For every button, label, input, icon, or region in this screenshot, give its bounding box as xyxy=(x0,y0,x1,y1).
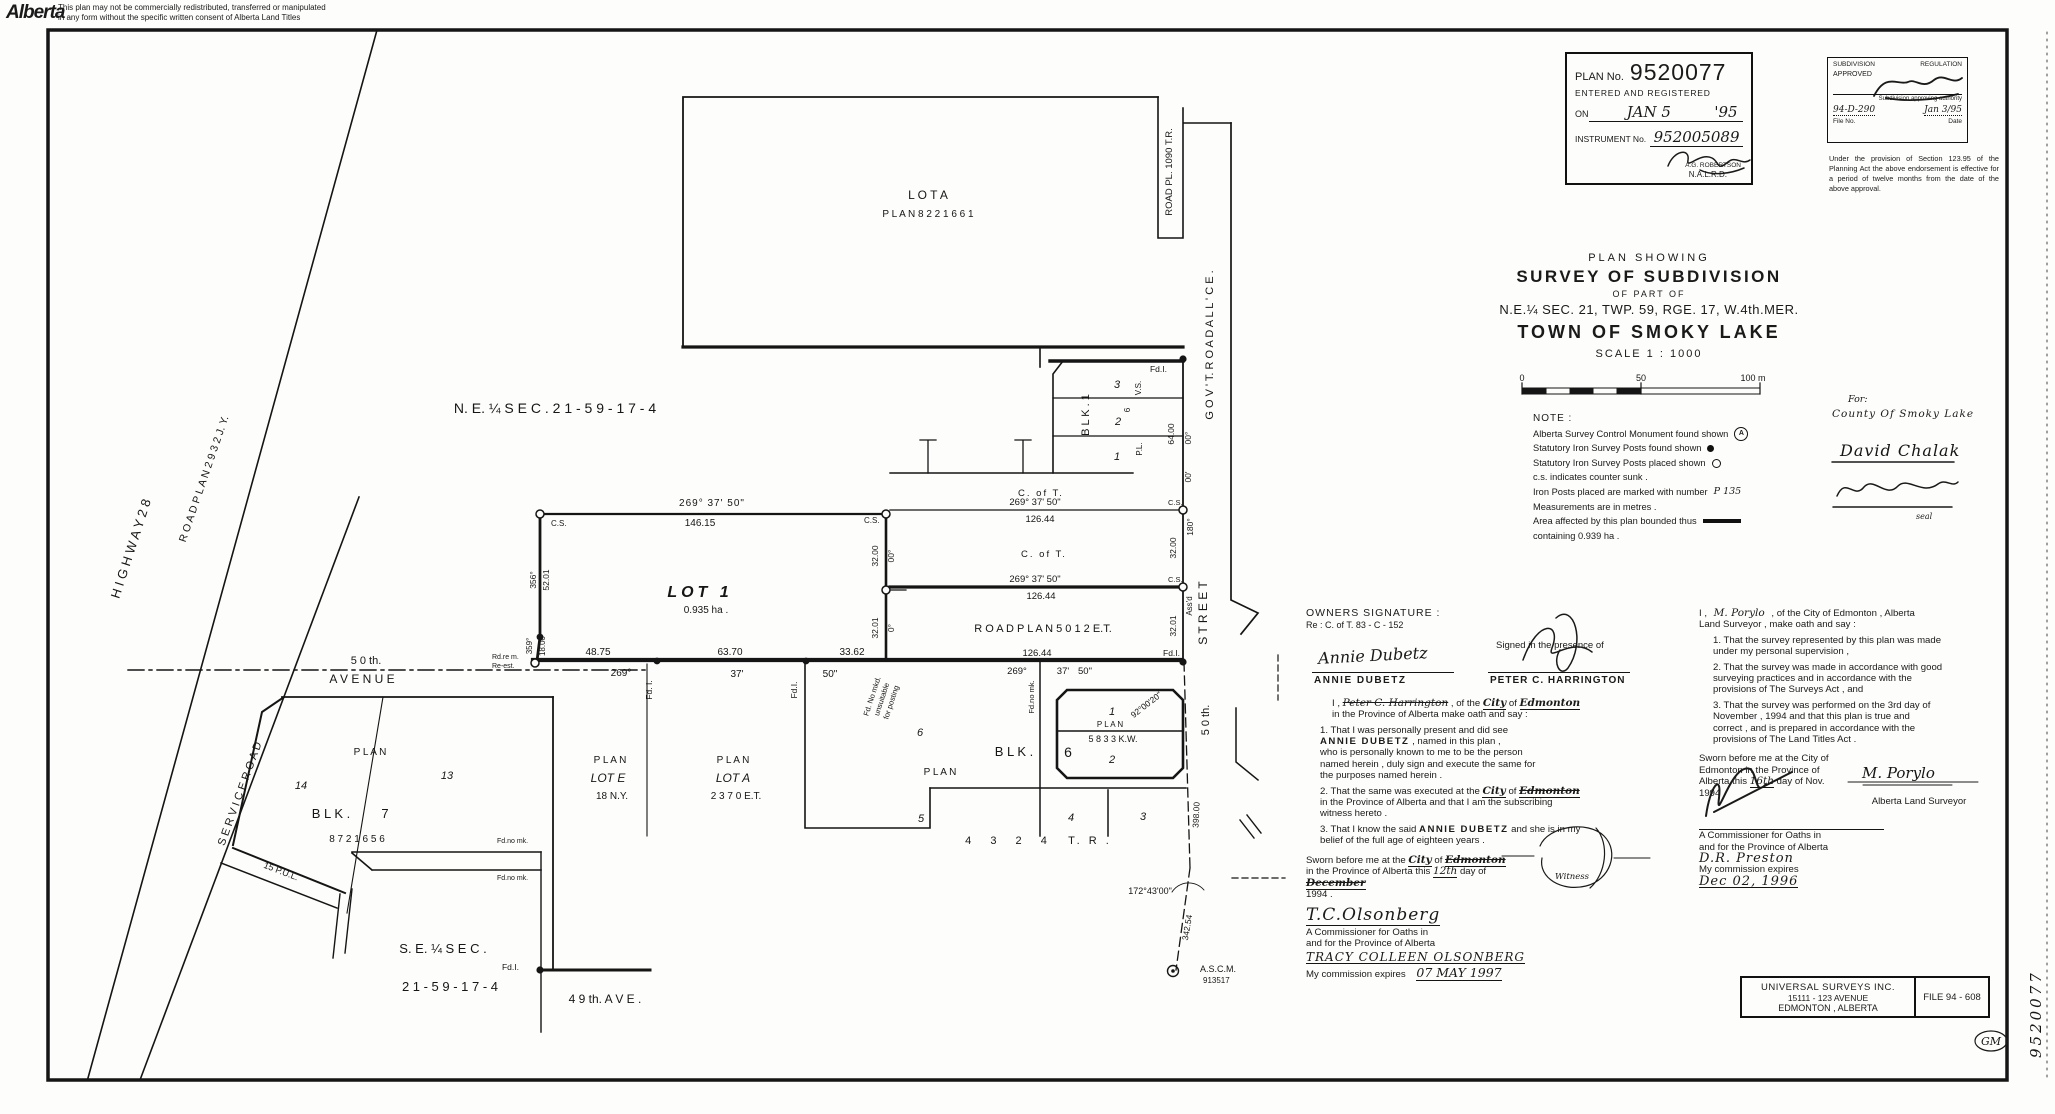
rd-note1: Rd.re m. xyxy=(492,654,519,661)
intro-place-hw: Edmonton xyxy=(1520,697,1581,710)
sworn-b: in the Province of xyxy=(1306,866,1380,877)
lot-number: 1 xyxy=(1109,706,1115,718)
on-label: ON xyxy=(1575,109,1589,119)
lot-number: 6 xyxy=(917,727,924,739)
bearing-rot: 00' xyxy=(1183,471,1193,482)
intro-mid: , of the xyxy=(1448,698,1483,709)
lote-plan: 18 N.Y. xyxy=(596,791,628,802)
dim-rot: 18.00 xyxy=(538,635,547,656)
note-line7: Area affected by this plan bounded thus xyxy=(1533,514,1697,529)
owners-heading: OWNERS SIGNATURE : xyxy=(1306,608,1698,619)
sworn-of: of xyxy=(1432,855,1443,866)
approval-file-value: 94-D-290 xyxy=(1833,105,1875,116)
cs-label: C.S. xyxy=(864,516,880,525)
bearing: 50" xyxy=(823,669,838,680)
parcel-tabs xyxy=(920,440,1031,473)
intro-line2: in the Province of Alberta make oath and… xyxy=(1332,709,1698,720)
surv-comm-date: Dec 02, 1996 xyxy=(1699,876,1798,888)
lot1-north-bearing: 269° 37' 50" xyxy=(679,498,745,509)
intro-city-hw: City xyxy=(1483,697,1506,710)
commissioner-area: T.C.Olsonberg A Commissioner for Oaths i… xyxy=(1306,910,1698,980)
approved-label: APPROVED xyxy=(1833,71,1872,78)
als-label: Alberta Land Surveyor xyxy=(1859,796,1979,807)
plan-label: P L A N xyxy=(354,747,387,758)
bearing: 269° 37' 50" xyxy=(1009,574,1060,585)
on-year: '95 xyxy=(1709,103,1743,122)
fd-label: Fd.I. xyxy=(789,681,799,698)
bearing-rot: 0° xyxy=(886,624,896,632)
alberta-logo: Alberta xyxy=(6,2,64,24)
plan-suffix-rot: P.L. xyxy=(1135,442,1144,455)
item1-text: 1. That I was personally present and did… xyxy=(1320,725,1508,736)
street50-label: 5 0 th. xyxy=(1200,705,1212,736)
owners-jurat: Sworn before me at the City of Edmonton … xyxy=(1306,855,1506,901)
scale-0: 0 xyxy=(1519,373,1524,383)
instrument-label: INSTRUMENT No. xyxy=(1575,134,1646,144)
surv-comm-name: D.R. Preston xyxy=(1699,853,1999,864)
service-road-line xyxy=(140,497,359,1080)
ne-quarter-label: N. E. ¼ S E C . 2 1 - 5 9 - 1 7 - 4 xyxy=(454,400,657,416)
note-line6: Measurements are in metres . xyxy=(1533,500,1801,515)
plan-label: P L A N xyxy=(594,755,627,766)
commissioner-signature: T.C.Olsonberg xyxy=(1306,905,1440,926)
bearing: 50" xyxy=(1078,666,1092,677)
note-line2: Statutory Iron Survey Posts found shown xyxy=(1533,441,1701,456)
plan-label: P L A N xyxy=(717,755,750,766)
plan4324: 4 3 2 4 xyxy=(965,835,1055,847)
blk6-plan: 5 8 3 3 K.W. xyxy=(1088,734,1137,744)
dim-rot: 342.54 xyxy=(1180,914,1194,942)
sworn-a: Sworn before me at the xyxy=(1306,855,1408,866)
angle-label: 172°43'00" xyxy=(1128,886,1172,896)
lotam-label: LOT A xyxy=(716,771,750,785)
note-line5: Iron Posts placed are marked with number xyxy=(1533,485,1708,500)
plan-label: P L A N xyxy=(1097,720,1123,729)
on-date: JAN 5 xyxy=(1589,103,1710,122)
ascm-label: A.S.C.M. xyxy=(1200,964,1236,974)
date-label: Date xyxy=(1948,118,1962,125)
dim: 33.62 xyxy=(839,647,864,658)
survey-plan-sheet: N. E. ¼ S E C . 2 1 - 5 9 - 1 7 - 4 S. E… xyxy=(0,0,2055,1114)
dim-rot: 52.01 xyxy=(541,569,551,591)
lot-number: 3 xyxy=(1114,379,1121,391)
fd-label: Fd.I. xyxy=(1150,364,1167,374)
fd-label: Fd.I. xyxy=(502,962,519,972)
bearing-rot: 00° xyxy=(1183,432,1193,445)
approval-caveat: Under the provision of Section 123.95 of… xyxy=(1829,154,1999,194)
surveyor-item2: 2. That the survey was made in accordanc… xyxy=(1713,662,1999,696)
blk6-lot-lines xyxy=(1040,661,1108,836)
bearing-rot: 00° xyxy=(886,550,896,563)
se-quarter-label2: 2 1 - 5 9 - 1 7 - 4 xyxy=(402,979,498,994)
intro-name-hw: Peter C. Harrington xyxy=(1343,697,1449,709)
highway-label: H I G H W A Y 2 8 xyxy=(108,497,154,600)
for-label: For: xyxy=(1848,394,1868,405)
approval-authority: Subdivision approving authority xyxy=(1833,94,1962,102)
seal-label: seal xyxy=(1916,512,1932,521)
witness-affidavit-intro: I , Peter C. Harrington , of the City of… xyxy=(1332,698,1698,721)
boundary-line-icon xyxy=(1703,519,1741,523)
rp1090-label: ROAD PL. 1090 T.R. xyxy=(1164,128,1175,215)
lota-west-north xyxy=(683,97,1158,347)
title-block: PLAN SHOWING SURVEY OF SUBDIVISION OF PA… xyxy=(1488,252,1810,360)
ave50-label1: 5 0 th. xyxy=(351,655,382,667)
surv-sworn-l3a: Alberta this xyxy=(1699,776,1750,787)
surv-sworn-l3b: day of Nov. xyxy=(1774,776,1824,787)
surv-comm-l1: A Commissioner for Oaths in xyxy=(1699,830,1999,841)
corridor-east2 xyxy=(1236,708,1258,780)
blk7-plan: 8 7 2 1 6 5 6 xyxy=(329,834,385,845)
sworn-year: 1994 . xyxy=(1306,889,1506,900)
lot-number: 2 xyxy=(1114,416,1121,428)
instrument-no: 952005089 xyxy=(1650,128,1743,147)
blk1-west xyxy=(1053,361,1063,473)
company-city: EDMONTON , ALBERTA xyxy=(1742,1003,1914,1013)
lot1-north-dist: 146.15 xyxy=(685,518,716,529)
bearing-rot: 180° xyxy=(1185,518,1195,536)
lot-number: 14 xyxy=(295,780,307,792)
witness-signature-line xyxy=(1488,672,1630,673)
registrar-name: A.G. ROBERTSON xyxy=(1685,162,1741,169)
item2-text: 2. That the same was executed at the xyxy=(1320,786,1482,797)
surv-sworn-l1: Sworn before me at the City of xyxy=(1699,753,1869,764)
registration-stamp: PLAN No. 9520077 ENTERED AND REGISTERED … xyxy=(1565,52,1753,185)
se-quarter-label: S. E. ¼ S E C . xyxy=(399,941,486,956)
lot-number: 3 xyxy=(1140,811,1147,823)
title-line4: N.E.¼ SEC. 21, TWP. 59, RGE. 17, W.4th.M… xyxy=(1488,302,1810,317)
scale-100: 100 m xyxy=(1740,373,1765,383)
owners-item1: 1. That I was personally present and did… xyxy=(1320,725,1698,782)
plan-no-label: PLAN No. xyxy=(1575,71,1624,83)
blk6-number: 6 xyxy=(1064,744,1072,760)
lota-top-label: L O T A xyxy=(908,188,948,202)
lot1-area: 0.935 ha . xyxy=(684,605,728,616)
fd-note-rot: Fd.no mk. xyxy=(1027,680,1036,713)
bearing: 269° xyxy=(1007,666,1027,677)
item3-name: ANNIE DUBETZ xyxy=(1419,824,1508,835)
bearing: 269° 37' 50" xyxy=(1009,497,1060,508)
surv-sworn-l4: 1994 xyxy=(1699,788,1869,799)
rd-note2: Re-est. xyxy=(492,663,515,670)
note-line4: c.s. indicates counter sunk . xyxy=(1533,470,1801,485)
found-posts xyxy=(536,355,1186,973)
fd-label: Fd. I. xyxy=(644,680,654,699)
lot-number: 13 xyxy=(441,770,454,782)
county-name: County Of Smoky Lake xyxy=(1832,408,1974,420)
owners-item2: 2. That the same was executed at the Cit… xyxy=(1320,786,1698,820)
note-line1: Alberta Survey Control Monument found sh… xyxy=(1533,427,1728,442)
lotam-plan: 2 3 7 0 E.T. xyxy=(711,791,762,802)
blk7-south-lines xyxy=(352,852,541,870)
commissioner-name: TRACY COLLEEN OLSONBERG xyxy=(1306,952,1525,964)
dim: 126.44 xyxy=(1025,514,1054,525)
rp5012-label: R O A D P L A N 5 0 1 2 E.T. xyxy=(974,623,1112,635)
approval-date-value: Jan 3/95 xyxy=(1924,105,1962,116)
lote-label: LOT E xyxy=(591,771,627,785)
cs-label: C.S. xyxy=(1168,575,1183,584)
file-number-box: FILE 94 - 608 xyxy=(1916,978,1988,1016)
fd-note-group: Fd. No mkd. unsuitable for posting xyxy=(862,675,902,723)
surveyor-intro: I , M. Porylo , of the City of Edmonton … xyxy=(1699,608,1999,631)
item2-city-hw: City xyxy=(1482,785,1505,798)
note-block: NOTE : Alberta Survey Control Monument f… xyxy=(1533,412,1801,543)
intro-pre: I , xyxy=(1332,698,1340,709)
lota-mid-east-lines xyxy=(805,663,930,828)
blk7-number: 7 xyxy=(381,806,388,821)
lot-number: 1 xyxy=(1114,451,1120,463)
item2-rest: in the Province of Alberta and that I am… xyxy=(1320,797,1553,819)
dim-rot: 64.00 xyxy=(1166,423,1176,445)
placed-post-icon xyxy=(1712,459,1721,468)
surveyor-item3: 3. That the survey was performed on the … xyxy=(1713,700,1999,746)
post-number: P 135 xyxy=(1714,485,1742,500)
witness-printed-name: PETER C. HARRINGTON xyxy=(1490,675,1626,686)
company-name: UNIVERSAL SURVEYS INC. xyxy=(1742,982,1914,993)
ave49-label: 4 9 th. A V E . xyxy=(569,992,642,1006)
corridor-east xyxy=(1231,123,1258,634)
sworn-d: day of xyxy=(1457,866,1486,877)
coft-label: C. of T. xyxy=(1021,549,1067,560)
lot-number: 2 xyxy=(1108,754,1115,766)
ave50-label2: A V E N U E xyxy=(329,672,394,686)
blk7-lot-line xyxy=(347,697,383,913)
bearing: 37' xyxy=(730,669,743,680)
service-road-label: S E R V I C E R O A D xyxy=(216,740,265,847)
commissioner-line2: and for the Province of Alberta xyxy=(1306,938,1698,949)
note-line3: Statutory Iron Survey Posts placed shown xyxy=(1533,456,1706,471)
file-label: File No. xyxy=(1833,118,1855,125)
dim: 48.75 xyxy=(585,647,610,658)
signature-row: Annie Dubetz ANNIE DUBETZ Signed in the … xyxy=(1306,632,1698,694)
surv-intro-post: , of the City of Edmonton , Alberta xyxy=(1769,608,1915,619)
found-post-icon xyxy=(1707,445,1714,452)
item3-text: 3. That I know the said xyxy=(1320,824,1419,835)
fd-note: Fd.no mk. xyxy=(497,875,528,882)
dim-rot: 32.01 xyxy=(870,617,880,639)
fd-note: Fd.no mk. xyxy=(497,838,528,845)
surv-intro-pre: I , xyxy=(1699,608,1707,619)
lota-top-plan: P L A N 8 2 2 1 6 6 1 xyxy=(882,209,974,220)
dim-rot: 32.00 xyxy=(870,545,880,567)
bearing: 269° xyxy=(611,668,632,679)
note-title: NOTE : xyxy=(1533,412,1801,427)
title-line3: OF PART OF xyxy=(1488,289,1810,299)
surv-sworn-day: 16th xyxy=(1750,775,1774,788)
fd-label: Fd.I. xyxy=(1163,648,1180,658)
dim: 126.44 xyxy=(1022,648,1051,659)
rp2932-label: R O A D P L A N 2 9 3 2 J. Y. xyxy=(177,414,232,543)
ascm-number: 913517 xyxy=(1203,976,1230,985)
dim-rot: 32.00 xyxy=(1168,537,1178,559)
item2-place-hw: Edmonton xyxy=(1519,785,1580,798)
scale-50: 50 xyxy=(1636,373,1646,383)
lot-number: 5 xyxy=(918,813,925,825)
street-label: S T R E E T xyxy=(1196,581,1210,645)
item2-of: of xyxy=(1506,786,1519,797)
bearing-rot: 356° xyxy=(528,571,538,589)
offset-slashes xyxy=(1240,815,1261,838)
surv-sworn-l2: Edmonton in the Province of xyxy=(1699,765,1869,776)
dim: 126.44 xyxy=(1026,591,1055,602)
owner-signature: Annie Dubetz xyxy=(1318,647,1428,664)
bearing: 37' xyxy=(1057,666,1070,677)
plan4324-suffix: T. R . xyxy=(1068,835,1112,847)
approval-title-left: SUBDIVISION xyxy=(1833,61,1875,68)
plan-suffix-rot: V.S. xyxy=(1134,381,1143,395)
scale-bar xyxy=(1522,383,1760,394)
owners-item3: 3. That I know the said ANNIE DUBETZ and… xyxy=(1320,824,1698,847)
item1-name: ANNIE DUBETZ xyxy=(1320,736,1409,747)
assd-label: Ass'd xyxy=(1185,596,1194,615)
owner-signature-line xyxy=(1312,672,1454,673)
cs-label: C.S. xyxy=(551,519,567,528)
owner-printed-name: ANNIE DUBETZ xyxy=(1314,675,1406,686)
note-line8: containing 0.939 ha . xyxy=(1533,529,1801,544)
surveyor-item1: 1. That the survey represented by this p… xyxy=(1713,635,1999,658)
commissioner-line1: A Commissioner for Oaths in xyxy=(1306,927,1698,938)
bearing-rot: 359° xyxy=(525,638,534,655)
pul-label: 15 P.U.L. xyxy=(262,860,300,882)
company-address: 15111 - 123 AVENUE xyxy=(1742,993,1914,1003)
sworn-c: Alberta this xyxy=(1382,866,1433,877)
blk7-label: B L K . xyxy=(312,806,351,821)
margin-initials: GM xyxy=(1981,1035,2002,1048)
govt-road-label: G O V ' T. R O A D A L L ' C E . xyxy=(1204,270,1216,419)
disclaimer: This plan may not be commercially redist… xyxy=(58,3,326,22)
cs-label: C.S. xyxy=(1168,498,1183,507)
approval-stamp: SUBDIVISION REGULATION APPROVED Subdivis… xyxy=(1827,57,1968,143)
for-block: For: County Of Smoky Lake seal xyxy=(1828,394,2003,524)
plan-no-value: 9520077 xyxy=(1630,59,1727,86)
plan-label: P L A N xyxy=(924,767,957,778)
commission-expiry-date: 07 MAY 1997 xyxy=(1416,965,1501,981)
owners-ref: Re : C. of T. 83 - C - 152 xyxy=(1306,620,1698,631)
sworn-day-hw: 12th xyxy=(1433,865,1457,878)
sworn-month-hw: December xyxy=(1306,877,1366,890)
entered-label: ENTERED AND REGISTERED xyxy=(1575,88,1743,98)
company-box: UNIVERSAL SURVEYS INC. 15111 - 123 AVENU… xyxy=(1742,978,1916,1016)
bearing-rot: 92°00'20" xyxy=(1129,689,1164,719)
footer-box: UNIVERSAL SURVEYS INC. 15111 - 123 AVENU… xyxy=(1740,976,1990,1018)
surv-intro-name: M. Porylo xyxy=(1714,607,1765,619)
surveyor-jurat: Sworn before me at the City of Edmonton … xyxy=(1699,753,1869,799)
dim: 63.70 xyxy=(717,647,742,658)
intro-of: of xyxy=(1506,698,1519,709)
blk6-label: B L K . xyxy=(995,744,1034,759)
blk1-label: B L K . 1 xyxy=(1080,394,1092,436)
title-line2: SURVEY OF SUBDIVISION xyxy=(1488,267,1810,287)
presence-label: Signed in the presence of xyxy=(1496,640,1604,651)
sworn-city-hw: City xyxy=(1408,854,1431,867)
dim-rot: 32.01 xyxy=(1168,615,1178,637)
title-line1: PLAN SHOWING xyxy=(1488,252,1810,264)
lot1-label: LOT 1 xyxy=(667,584,732,601)
ascm-monument xyxy=(1168,966,1179,977)
surveyor-commissioner: A Commissioner for Oaths in and for the … xyxy=(1699,829,1999,888)
disclaimer-line1: This plan may not be commercially redist… xyxy=(58,3,326,13)
registry-office: N.A.L.R.D. xyxy=(1689,170,1727,179)
monument-symbol-icon: A xyxy=(1734,427,1748,441)
commission-expires-label: My commission expires xyxy=(1306,969,1406,980)
plan-suffix-rot: 6 xyxy=(1123,407,1132,412)
dim-rot: 398.00 xyxy=(1190,801,1201,828)
margin-plan-number: 9520077 xyxy=(2027,970,2045,1058)
title-scale: SCALE 1 : 1000 xyxy=(1488,348,1810,360)
approval-title-right: REGULATION xyxy=(1920,61,1962,68)
surveyor-block: I , M. Porylo , of the City of Edmonton … xyxy=(1699,608,1999,888)
title-line5: TOWN OF SMOKY LAKE xyxy=(1488,322,1810,343)
surv-intro-line2: Land Surveyor , make oath and say : xyxy=(1699,619,1999,630)
owners-block: OWNERS SIGNATURE : Re : C. of T. 83 - C … xyxy=(1306,608,1698,980)
disclaimer-line2: in any form without the specific written… xyxy=(58,13,326,23)
lot-number: 4 xyxy=(1068,812,1074,824)
